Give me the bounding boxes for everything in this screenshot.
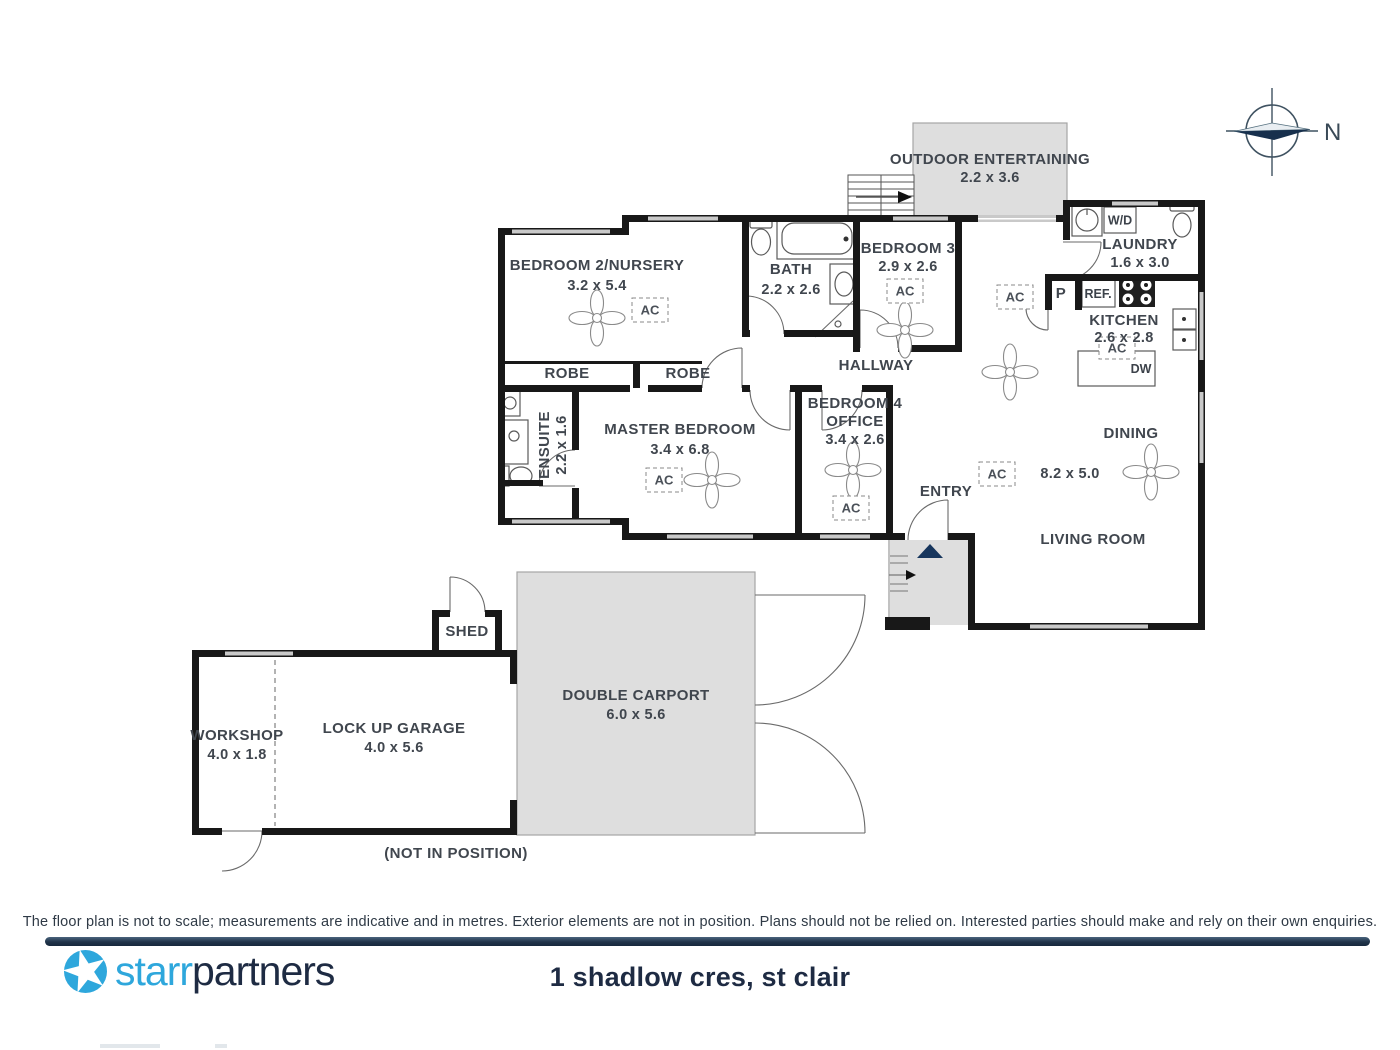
room-label-dining: DINING <box>1104 425 1159 442</box>
note-not-in-position: (NOT IN POSITION) <box>384 845 527 862</box>
room-dims-kitchen: 2.6 x 2.8 <box>1094 330 1153 346</box>
print-artifact <box>215 1044 227 1048</box>
room-label-robe-right: ROBE <box>666 365 711 382</box>
floorplan-page: AC AC AC AC AC AC AC OUTDOOR ENTERTAININ… <box>0 0 1400 1050</box>
ceiling-fan-icon <box>1123 444 1179 500</box>
ceiling-fan-icon <box>825 442 881 498</box>
room-label-workshop: WORKSHOP <box>190 727 283 744</box>
dishwasher-label: DW <box>1131 362 1152 376</box>
room-label-bedroom2: BEDROOM 2/NURSERY <box>510 257 685 274</box>
room-dims-laundry: 1.6 x 3.0 <box>1110 255 1169 271</box>
room-label-outdoor: OUTDOOR ENTERTAINING <box>890 151 1090 168</box>
room-label-bedroom3: BEDROOM 3 <box>861 240 955 257</box>
room-dims-bath: 2.2 x 2.6 <box>761 282 820 298</box>
room-dims-bedroom2: 3.2 x 5.4 <box>567 278 626 294</box>
room-label-laundry: LAUNDRY <box>1102 236 1178 253</box>
room-dims-carport: 6.0 x 5.6 <box>606 707 665 723</box>
room-dims-living-dining: 8.2 x 5.0 <box>1040 466 1099 482</box>
room-label-bedroom4: BEDROOM 4 <box>808 395 903 412</box>
laundry-fixtures <box>1072 203 1194 237</box>
room-label-hallway: HALLWAY <box>839 357 914 374</box>
ac-label: AC <box>1006 290 1025 305</box>
ac-label: AC <box>896 284 915 299</box>
room-dims-ensuite: 2.2 x 1.6 <box>554 415 570 474</box>
ac-label: AC <box>655 473 674 488</box>
room-label-shed: SHED <box>445 623 488 640</box>
room-dims-garage: 4.0 x 5.6 <box>364 740 423 756</box>
room-label-entry: ENTRY <box>920 483 972 500</box>
footer-divider-bar <box>45 937 1370 946</box>
room-label-living: LIVING ROOM <box>1040 531 1145 548</box>
ceiling-fan-icon <box>684 452 740 508</box>
ceiling-fan-icon <box>569 290 625 346</box>
room-label-ensuite: ENSUITE <box>536 411 553 479</box>
room-dims-outdoor: 2.2 x 3.6 <box>960 170 1019 186</box>
compass-icon: N <box>1226 88 1341 176</box>
floor-plan: AC AC AC AC AC AC AC OUTDOOR ENTERTAININ… <box>0 0 1400 1050</box>
room-label-kitchen: KITCHEN <box>1089 312 1158 329</box>
disclaimer-text: The floor plan is not to scale; measurem… <box>0 914 1400 930</box>
property-address: 1 shadlow cres, st clair <box>0 962 1400 993</box>
room-label-bath: BATH <box>770 261 812 278</box>
ac-label: AC <box>988 467 1007 482</box>
room-dims-bedroom3: 2.9 x 2.6 <box>878 259 937 275</box>
ac-label: AC <box>641 303 660 318</box>
compass-north-label: N <box>1324 119 1341 146</box>
pantry-label: P <box>1056 285 1066 302</box>
print-artifact <box>100 1044 160 1048</box>
ceiling-fan-icon <box>982 344 1038 400</box>
fridge-label: REF. <box>1084 287 1111 301</box>
room-label-robe-left: ROBE <box>545 365 590 382</box>
room-label-carport: DOUBLE CARPORT <box>562 687 709 704</box>
room-dims-bedroom4: 3.4 x 2.6 <box>825 432 884 448</box>
room-label-bedroom4-office: OFFICE <box>826 413 883 430</box>
stairs-icon <box>848 175 914 218</box>
ac-label: AC <box>842 501 861 516</box>
room-dims-workshop: 4.0 x 1.8 <box>207 747 266 763</box>
room-dims-master: 3.4 x 6.8 <box>650 442 709 458</box>
room-label-garage: LOCK UP GARAGE <box>323 720 466 737</box>
room-label-master: MASTER BEDROOM <box>604 421 755 438</box>
washer-dryer-label: W/D <box>1108 214 1132 228</box>
